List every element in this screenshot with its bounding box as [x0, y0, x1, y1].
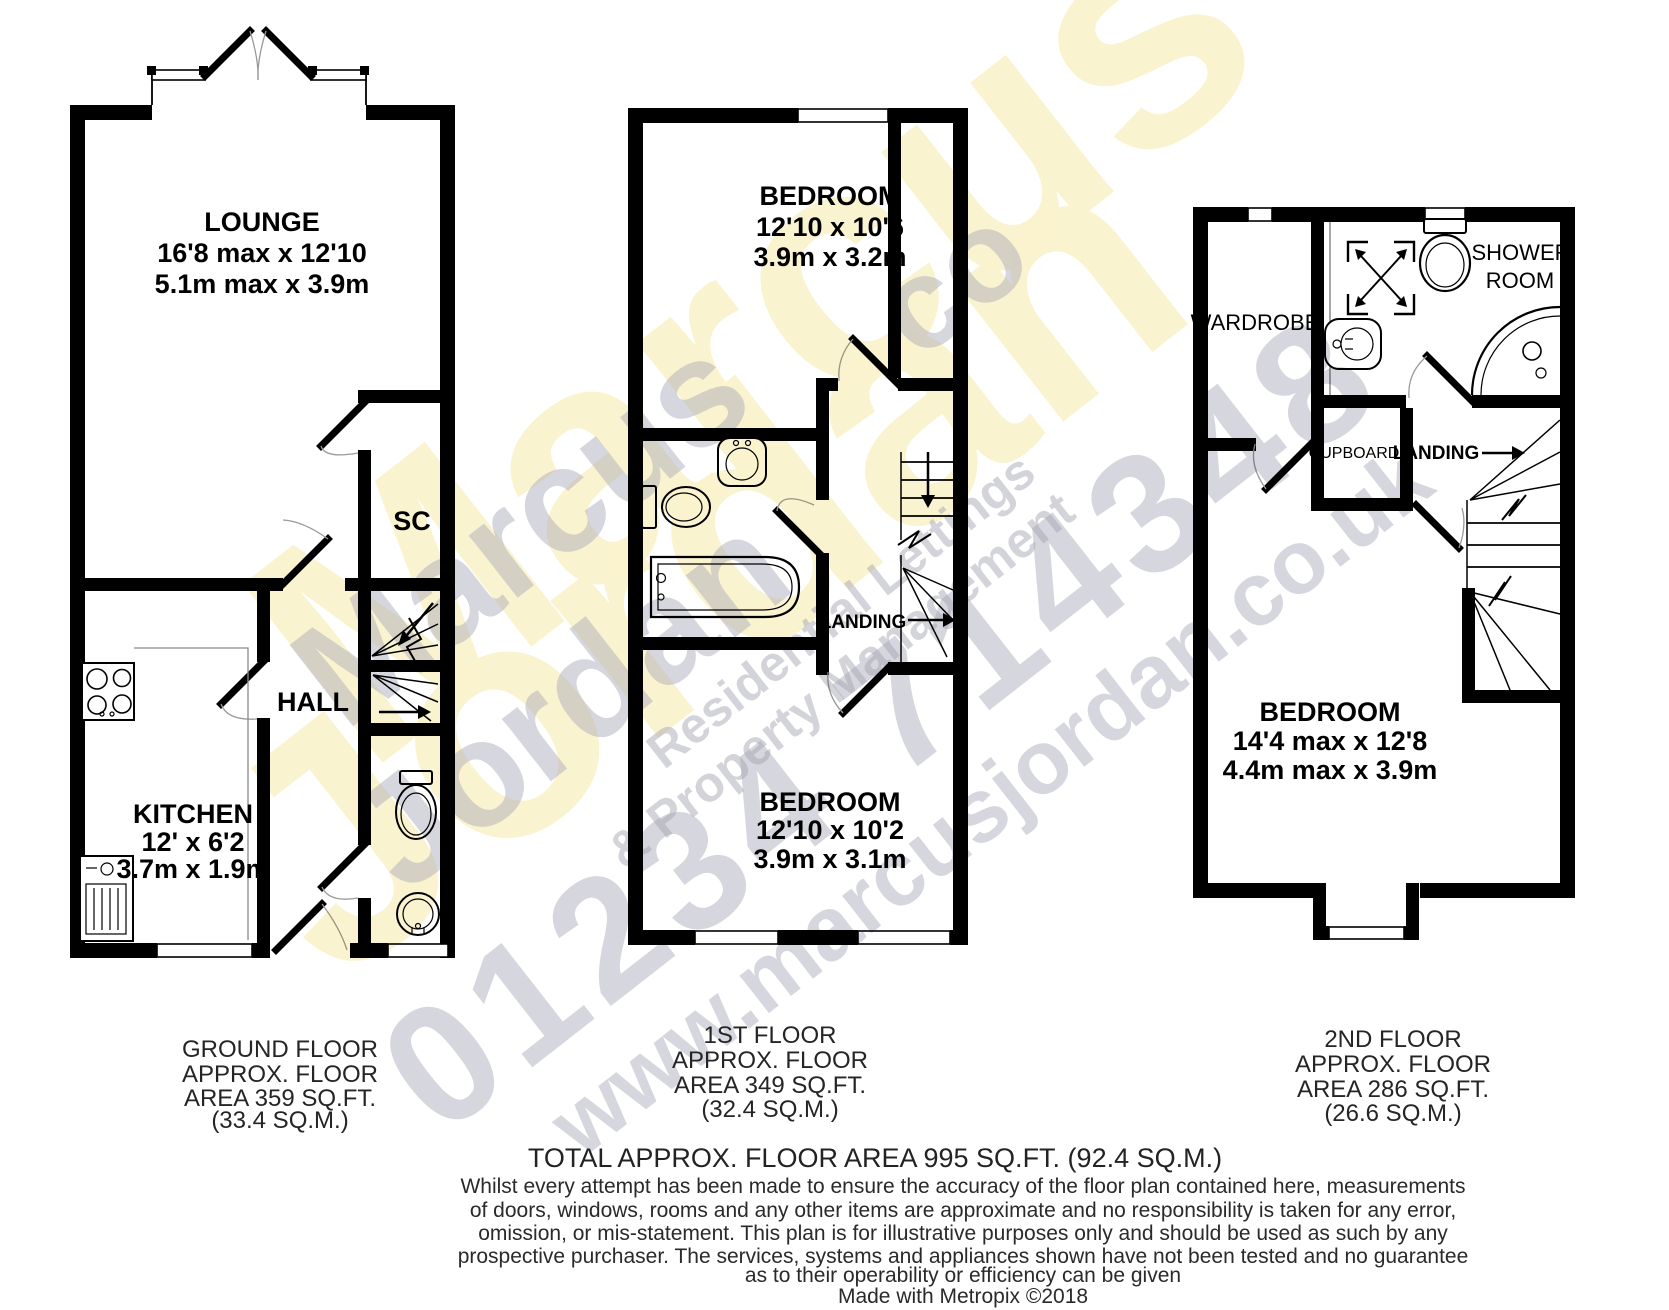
second-stairs: [1467, 420, 1560, 690]
disclaimer-line3: omission, or mis-statement. This plan is…: [478, 1222, 1448, 1245]
lounge-dims-ft: 16'8 max x 12'10: [157, 238, 367, 268]
shower-room-label-line1: SHOWER: [1472, 240, 1571, 265]
disclaimer-line2: of doors, windows, rooms and any other i…: [470, 1199, 1456, 1222]
first-caption-line3: AREA 349 SQ.FT.: [674, 1072, 866, 1099]
first-caption-line4: (32.4 SQ.M.): [701, 1096, 838, 1123]
total-area-text: TOTAL APPROX. FLOOR AREA 995 SQ.FT. (92.…: [528, 1143, 1222, 1173]
second-bedroom-dims-ft: 14'4 max x 12'8: [1233, 726, 1428, 756]
ground-caption-line4: (33.4 SQ.M.): [211, 1107, 348, 1134]
french-doors: [147, 31, 369, 105]
disclaimer-line5: as to their operability or efficiency ca…: [745, 1264, 1181, 1287]
second-caption-line2: APPROX. FLOOR: [1295, 1051, 1491, 1078]
dormer-window: [1329, 927, 1404, 939]
first-caption-line2: APPROX. FLOOR: [672, 1047, 868, 1074]
ground-caption-line2: APPROX. FLOOR: [182, 1061, 378, 1088]
ground-caption-line1: GROUND FLOOR: [182, 1036, 378, 1063]
corner-shower-icon: [1472, 307, 1560, 395]
second-bedroom-dims-m: 4.4m max x 3.9m: [1223, 755, 1438, 785]
floorplan-canvas: LOUNGE 16'8 max x 12'10 5.1m max x 3.9m …: [0, 0, 1669, 1310]
toilet-icon: [1420, 219, 1470, 291]
floorplan-page: LOUNGE 16'8 max x 12'10 5.1m max x 3.9m …: [0, 0, 1669, 1310]
disclaimer-line1: Whilst every attempt has been made to en…: [460, 1175, 1465, 1198]
metropix-credit: Made with Metropix ©2018: [838, 1285, 1088, 1308]
shower-room-label-line2: ROOM: [1486, 268, 1554, 293]
second-caption-line1: 2ND FLOOR: [1324, 1026, 1461, 1053]
footer: TOTAL APPROX. FLOOR AREA 995 SQ.FT. (92.…: [458, 1143, 1469, 1308]
shower-tray-icon: [1348, 242, 1414, 314]
shower-room-door: [1427, 356, 1472, 401]
wardrobe-window: [1248, 208, 1272, 221]
second-caption-line4: (26.6 SQ.M.): [1324, 1100, 1461, 1127]
second-bedroom-label: BEDROOM: [1260, 697, 1401, 727]
first-caption-line1: 1ST FLOOR: [704, 1022, 837, 1049]
lounge-dims-m: 5.1m max x 3.9m: [155, 269, 370, 299]
kitchen-window: [157, 944, 252, 957]
lounge-label: LOUNGE: [204, 207, 320, 237]
second-caption-line3: AREA 286 SQ.FT.: [1297, 1076, 1489, 1103]
